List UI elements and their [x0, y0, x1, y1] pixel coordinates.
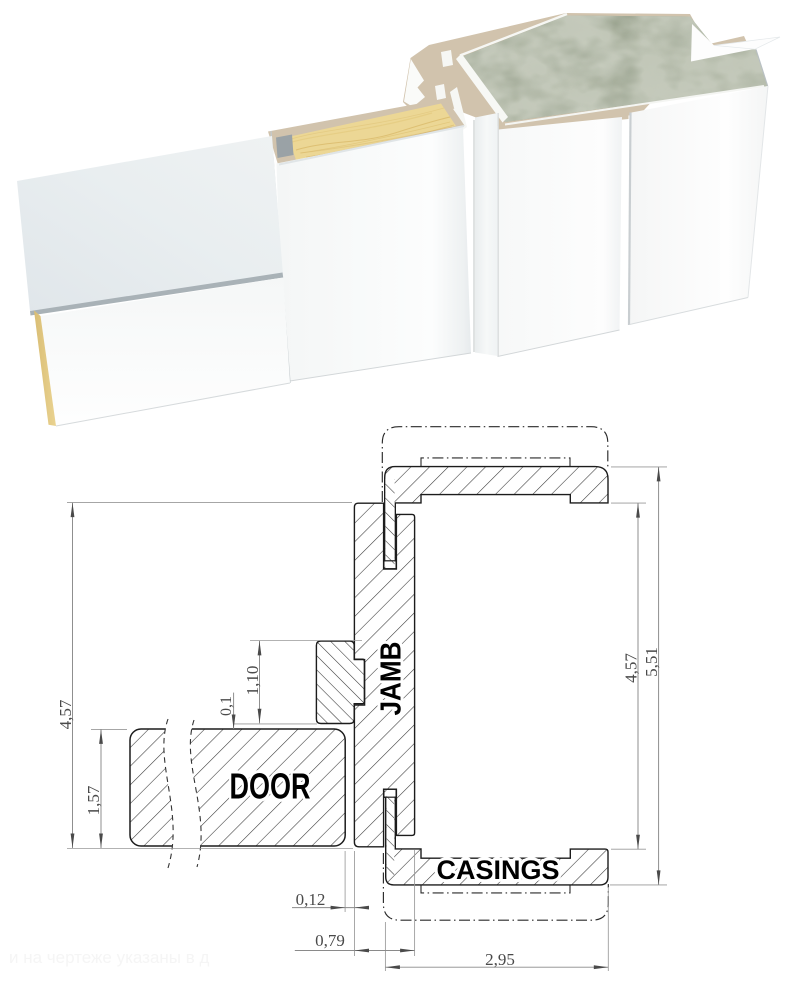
- svg-text:1,10: 1,10: [243, 666, 262, 696]
- svg-text:5,51: 5,51: [642, 647, 661, 677]
- svg-text:и на чертеже указаны в д: и на чертеже указаны в д: [9, 948, 209, 967]
- svg-text:CASINGS: CASINGS: [437, 855, 560, 885]
- svg-text:JAMB: JAMB: [376, 642, 408, 716]
- svg-text:0,12: 0,12: [296, 890, 326, 909]
- svg-text:0,79: 0,79: [315, 931, 345, 950]
- svg-text:4,57: 4,57: [56, 699, 75, 729]
- svg-text:4,57: 4,57: [622, 653, 641, 683]
- svg-text:0,1: 0,1: [218, 696, 235, 716]
- svg-text:2,95: 2,95: [485, 950, 515, 969]
- svg-text:1,57: 1,57: [84, 785, 103, 815]
- svg-text:DOOR: DOOR: [230, 766, 311, 807]
